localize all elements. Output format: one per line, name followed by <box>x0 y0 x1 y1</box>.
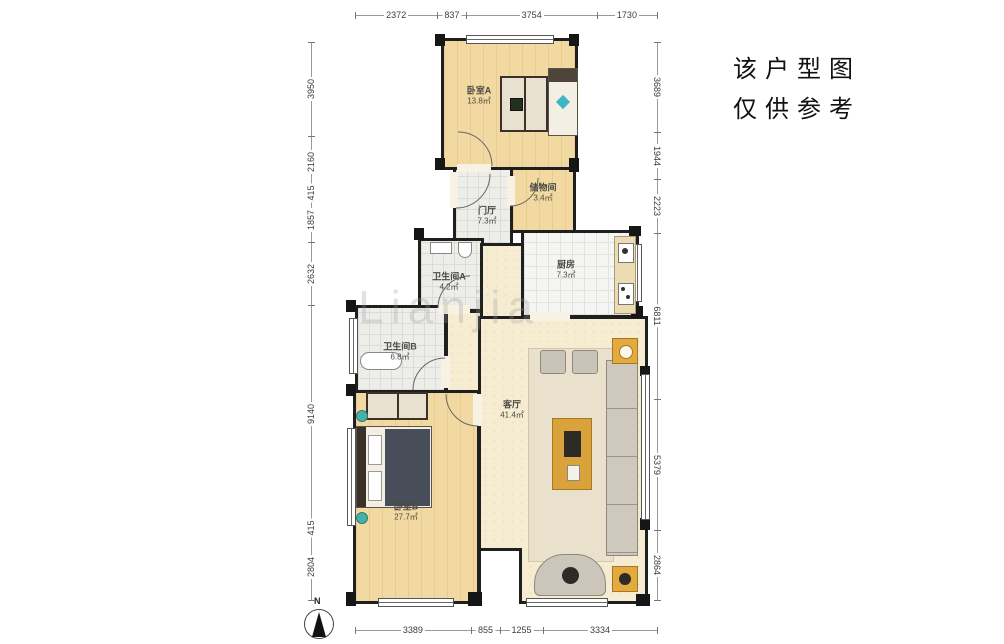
dimension-value: 855 <box>476 625 495 635</box>
room-label-bath-a: 卫生间A 4.2㎡ <box>432 271 466 292</box>
dimension-value: 415 <box>306 519 316 538</box>
door-gap <box>441 356 450 388</box>
window <box>526 598 608 607</box>
dimension-chain-top: 237283737541730 <box>355 9 657 22</box>
plant-icon <box>356 512 368 524</box>
room-label-hall: 门厅 7.3㎡ <box>477 205 496 226</box>
dimension-tick <box>308 600 315 601</box>
dimension-tick <box>654 399 661 400</box>
plant-icon <box>356 410 368 422</box>
sink-icon <box>430 242 452 254</box>
room-label-bedroom-a: 卧室A 13.8㎡ <box>467 85 492 106</box>
room-label-bath-b: 卫生间B 6.8㎡ <box>383 341 417 362</box>
window <box>347 428 356 526</box>
dimension-tick <box>308 242 315 243</box>
dimension-tick <box>471 627 472 634</box>
dimension-tick <box>355 12 356 19</box>
dimension-value: 2372 <box>384 10 408 20</box>
window <box>349 318 358 374</box>
sofa-icon <box>606 360 638 556</box>
dimension-line <box>311 42 312 600</box>
door-gap <box>530 312 570 321</box>
floor-plan-page: 卧室A 13.8㎡ 储物间 3.4㎡ 门厅 7.3㎡ 厨房 7.3㎡ 卫生间A … <box>0 0 1004 644</box>
dimension-tick <box>308 136 315 137</box>
window <box>641 374 650 520</box>
dimension-value: 9140 <box>306 402 316 426</box>
exterior-notch <box>478 548 522 604</box>
wall-pillar <box>435 34 445 46</box>
door-gap <box>450 172 458 208</box>
dimension-tick <box>654 132 661 133</box>
dimension-value: 6811 <box>652 305 662 328</box>
dimension-value: 3689 <box>652 75 662 99</box>
dimension-tick <box>466 12 467 19</box>
dimension-value: 2632 <box>306 262 316 286</box>
dimension-tick <box>657 627 658 634</box>
door-gap <box>438 305 470 314</box>
dimension-chain-right: 368919442223681153792864 <box>651 42 664 600</box>
kitchen-counter-icon <box>614 236 636 314</box>
bed-icon <box>548 68 578 136</box>
dimension-value: 3389 <box>401 625 425 635</box>
reference-note-line1: 该户型图 <box>733 50 861 90</box>
dimension-tick <box>500 627 501 634</box>
plant-box-icon <box>612 338 638 364</box>
wall-pillar <box>629 226 641 236</box>
room-label-bedroom-b: 卧室B 27.7㎡ <box>394 501 419 522</box>
toilet-icon <box>458 242 472 258</box>
compass-icon: N <box>296 594 342 644</box>
door-gap <box>507 176 515 206</box>
wall-pillar <box>346 300 356 312</box>
dimension-value: 3950 <box>306 77 316 101</box>
dimension-value: 2864 <box>652 553 662 577</box>
dimension-value: 5379 <box>652 453 662 477</box>
dimension-value: 837 <box>442 10 461 20</box>
dimension-value: 1944 <box>652 144 662 168</box>
dimension-tick <box>654 233 661 234</box>
room-corridor <box>480 243 524 321</box>
dimension-value: 2804 <box>306 555 316 579</box>
lounge-chair-icon <box>534 554 606 596</box>
dimension-tick <box>308 42 315 43</box>
wall-pillar <box>346 592 356 606</box>
armchair-icon <box>540 350 566 374</box>
wall-pillar <box>435 158 445 170</box>
dimension-value: 3334 <box>588 625 612 635</box>
dimension-value: 1857 <box>306 208 316 232</box>
dimension-tick <box>657 12 658 19</box>
dimension-tick <box>437 12 438 19</box>
wall-pillar <box>468 592 482 606</box>
dimension-tick <box>654 600 661 601</box>
wardrobe-icon <box>366 392 428 420</box>
room-label-kitchen: 厨房 7.3㎡ <box>556 259 575 280</box>
dimension-tick <box>654 179 661 180</box>
coffee-table-icon <box>552 418 592 490</box>
room-label-storage: 储物间 3.4㎡ <box>529 182 556 203</box>
door-gap <box>473 394 482 426</box>
room-label-living: 客厅 41.4㎡ <box>500 399 524 420</box>
dimension-value: 415 <box>306 183 316 202</box>
wall-pillar <box>414 228 424 240</box>
armchair-icon <box>572 350 598 374</box>
window <box>466 35 554 44</box>
wall-pillar <box>569 34 579 46</box>
plant-box-icon <box>612 566 638 592</box>
dimension-chain-left: 395021604151857263291404152804 <box>305 42 318 600</box>
dimension-tick <box>543 627 544 634</box>
reference-note: 该户型图 仅供参考 <box>733 50 861 130</box>
wall-pillar <box>346 384 356 396</box>
dimension-tick <box>355 627 356 634</box>
wardrobe-icon <box>500 76 548 132</box>
dimension-chain-bottom: 338985512553334 <box>355 624 657 637</box>
dimension-tick <box>654 42 661 43</box>
dimension-value: 2223 <box>652 194 662 218</box>
wall-pillar <box>636 594 650 606</box>
dimension-tick <box>654 530 661 531</box>
compass-needle <box>312 612 326 637</box>
dimension-value: 1255 <box>510 625 534 635</box>
dimension-value: 3754 <box>520 10 544 20</box>
dimension-tick <box>597 12 598 19</box>
dimension-tick <box>308 305 315 306</box>
reference-note-line2: 仅供参考 <box>733 90 861 130</box>
door-gap <box>457 164 491 172</box>
dimension-value: 2160 <box>306 150 316 174</box>
wall-pillar <box>569 158 579 172</box>
bed-icon <box>356 426 432 508</box>
dimension-value: 1730 <box>615 10 639 20</box>
window <box>378 598 454 607</box>
